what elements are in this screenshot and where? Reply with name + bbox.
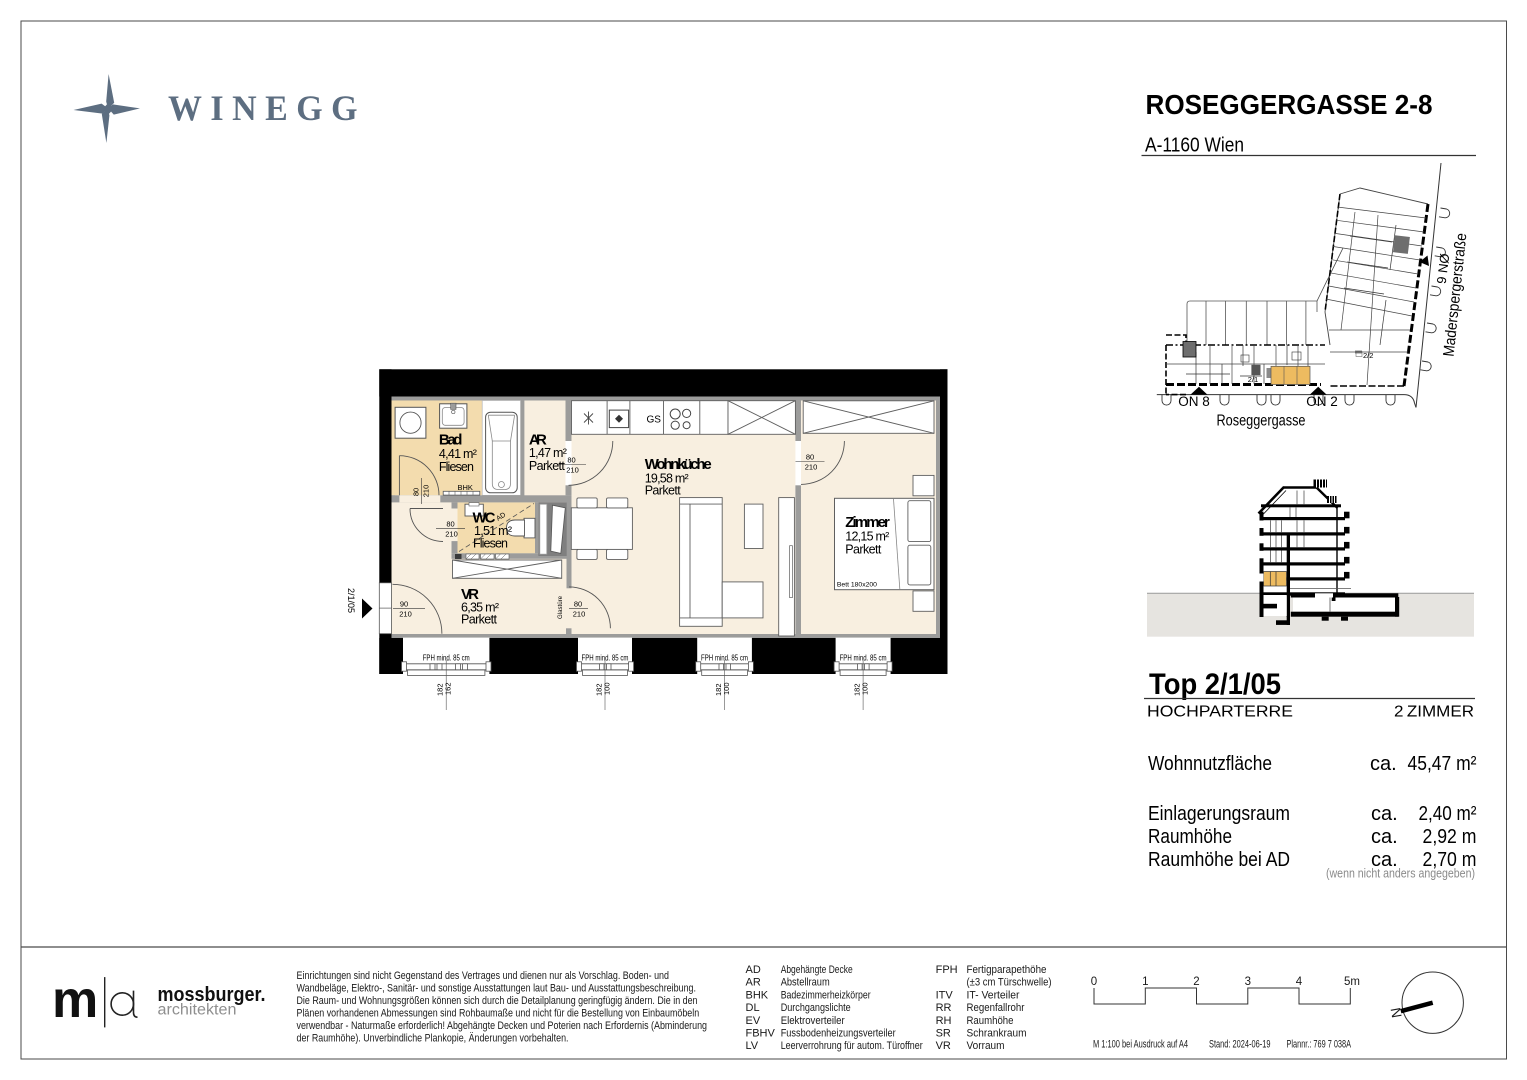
svg-text:ROSEGGERGASSE 2-8: ROSEGGERGASSE 2-8 <box>1146 89 1433 120</box>
svg-text:210: 210 <box>805 463 818 472</box>
svg-text:210: 210 <box>566 466 579 475</box>
svg-text:A-1160 Wien: A-1160 Wien <box>1145 134 1244 157</box>
svg-text:SR: SR <box>936 1028 951 1040</box>
svg-text:Badezimmerheizkörper: Badezimmerheizkörper <box>781 989 871 1001</box>
svg-text:Parkett: Parkett <box>645 484 682 498</box>
svg-text:FBHV: FBHV <box>746 1028 776 1040</box>
svg-text:Regenfallrohr: Regenfallrohr <box>967 1002 1025 1014</box>
svg-text:2 ZIMMER: 2 ZIMMER <box>1394 704 1474 721</box>
svg-text:IT- Verteiler: IT- Verteiler <box>967 989 1020 1001</box>
svg-text:80: 80 <box>567 456 575 465</box>
svg-text:AR: AR <box>746 977 761 989</box>
svg-text:Fertigparapethöhe: Fertigparapethöhe <box>967 964 1047 976</box>
svg-text:90: 90 <box>400 600 408 609</box>
svg-text:architekten: architekten <box>158 1002 237 1019</box>
svg-text:4: 4 <box>1296 976 1303 988</box>
svg-text:Fussbodenheizungsverteiler: Fussbodenheizungsverteiler <box>781 1028 896 1040</box>
svg-text:M 1:100 bei Ausdruck auf A4: M 1:100 bei Ausdruck auf A4 <box>1093 1039 1188 1051</box>
svg-text:Wohnnutzfläche: Wohnnutzfläche <box>1148 753 1272 775</box>
svg-text:Wandbeläge, Elektro-, Sanitär-: Wandbeläge, Elektro-, Sanitär- und sonst… <box>297 982 697 994</box>
svg-text:BHK: BHK <box>458 483 473 492</box>
svg-text:Durchgangslichte: Durchgangslichte <box>781 1002 851 1014</box>
svg-text:ca.: ca. <box>1371 826 1398 848</box>
svg-text:RR: RR <box>936 1002 952 1014</box>
svg-text:ITV: ITV <box>936 989 954 1001</box>
svg-text:Raumhöhe: Raumhöhe <box>967 1015 1014 1027</box>
svg-text:2/1/05: 2/1/05 <box>346 588 356 613</box>
svg-text:Roseggergasse: Roseggergasse <box>1217 413 1306 430</box>
svg-text:ON 2: ON 2 <box>1306 394 1338 409</box>
svg-text:HOCHPARTERRE: HOCHPARTERRE <box>1147 704 1293 721</box>
svg-text:der Raumhöhe). Unverbindliche: der Raumhöhe). Unverbindliche Plankopie,… <box>297 1032 569 1044</box>
svg-text:Parkett: Parkett <box>461 613 498 627</box>
svg-text:Einlagerungsraum: Einlagerungsraum <box>1148 803 1290 825</box>
svg-text:100: 100 <box>602 682 611 695</box>
svg-text:GS: GS <box>647 415 662 426</box>
svg-text:Parkett: Parkett <box>529 459 566 473</box>
svg-text:12,15 m²: 12,15 m² <box>845 529 889 543</box>
svg-text:(wenn nicht anders angegeben): (wenn nicht anders angegeben) <box>1326 866 1475 881</box>
svg-text:Einrichtungen sind nicht Gegen: Einrichtungen sind nicht Gegenstand des … <box>297 970 670 982</box>
svg-text:100: 100 <box>722 682 731 695</box>
svg-text:0: 0 <box>1091 976 1097 988</box>
svg-text:80: 80 <box>806 453 814 462</box>
svg-text:LV: LV <box>746 1040 759 1052</box>
svg-text:Plannr.: 769 7 038A: Plannr.: 769 7 038A <box>1287 1039 1352 1051</box>
svg-text:FPH: FPH <box>936 964 958 976</box>
svg-text:45,47 m²: 45,47 m² <box>1408 753 1477 775</box>
svg-text:Stand: 2024-06-19: Stand: 2024-06-19 <box>1209 1039 1271 1051</box>
svg-text:210: 210 <box>573 610 586 619</box>
svg-text:Elektroverteiler: Elektroverteiler <box>781 1015 845 1027</box>
svg-text:1: 1 <box>1142 976 1148 988</box>
svg-text:Leerverrohrung für autom. Türo: Leerverrohrung für autom. Türoffner <box>781 1040 923 1052</box>
svg-text:Raumhöhe: Raumhöhe <box>1148 826 1232 848</box>
svg-text:ca.: ca. <box>1371 803 1398 825</box>
svg-text:2,92 m: 2,92 m <box>1423 826 1477 848</box>
svg-text:Plänen vorhandenen Abmessungen: Plänen vorhandenen Abmessungen sind Rohb… <box>297 1007 700 1019</box>
svg-text:AD: AD <box>746 964 761 976</box>
svg-text:80: 80 <box>412 488 421 496</box>
svg-text:210: 210 <box>399 610 412 619</box>
svg-text:2/2: 2/2 <box>1363 351 1373 360</box>
svg-text:ca.: ca. <box>1370 753 1397 775</box>
svg-text:verwendbar - Naturmaße erforde: verwendbar - Naturmaße erforderlich! Abg… <box>297 1020 708 1032</box>
svg-text:Glastüre: Glastüre <box>557 595 564 619</box>
svg-text:Vorraum: Vorraum <box>967 1040 1005 1052</box>
svg-text:ON 8: ON 8 <box>1178 394 1210 409</box>
svg-text:2/1: 2/1 <box>1248 375 1258 384</box>
svg-text:Abgehängte Decke: Abgehängte Decke <box>781 964 853 976</box>
svg-text:WINEGG: WINEGG <box>168 88 366 128</box>
svg-text:Top 2/1/05: Top 2/1/05 <box>1149 668 1281 701</box>
svg-text:2: 2 <box>1193 976 1199 988</box>
svg-text:RH: RH <box>936 1015 952 1027</box>
svg-text:Die Raum- und Wohnungsgrößen k: Die Raum- und Wohnungsgrößen können sich… <box>297 995 698 1007</box>
svg-text:m: m <box>52 971 98 1029</box>
svg-text:80: 80 <box>574 600 582 609</box>
svg-text:EV: EV <box>746 1015 761 1027</box>
svg-text:Raumhöhe bei AD: Raumhöhe bei AD <box>1148 849 1290 871</box>
svg-text:2,40 m²: 2,40 m² <box>1419 803 1477 825</box>
svg-text:BHK: BHK <box>746 989 769 1001</box>
svg-text:Bett 180x200: Bett 180x200 <box>837 582 877 589</box>
svg-text:DL: DL <box>746 1002 760 1014</box>
svg-text:5m: 5m <box>1344 976 1360 988</box>
svg-text:3: 3 <box>1245 976 1251 988</box>
svg-text:162: 162 <box>444 682 453 695</box>
svg-text:210: 210 <box>422 485 431 498</box>
svg-text:Abstellraum: Abstellraum <box>781 977 830 989</box>
svg-text:Fliesen: Fliesen <box>439 460 474 474</box>
svg-text:Parkett: Parkett <box>845 543 882 557</box>
svg-text:Schrankraum: Schrankraum <box>967 1028 1027 1040</box>
svg-text:VR: VR <box>936 1040 951 1052</box>
svg-text:210: 210 <box>445 530 458 539</box>
svg-text:80: 80 <box>446 520 454 529</box>
svg-text:100: 100 <box>860 682 869 695</box>
svg-text:Fliesen: Fliesen <box>473 537 508 551</box>
svg-text:(±3 cm Türschwelle): (±3 cm Türschwelle) <box>967 977 1052 989</box>
